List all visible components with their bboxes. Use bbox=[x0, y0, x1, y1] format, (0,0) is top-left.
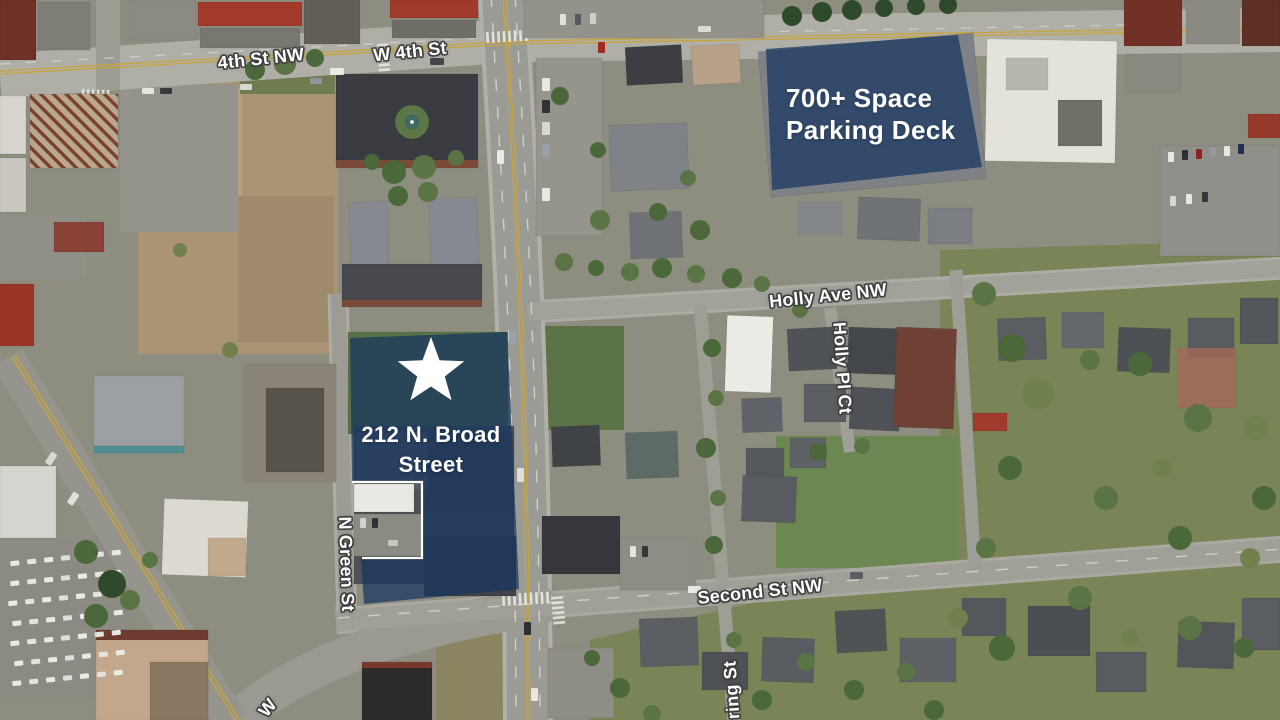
parking-deck-label-line2: Parking Deck bbox=[786, 114, 956, 146]
aerial-site-map: 4th St NW W 4th St Holly Ave NW Holly Pl… bbox=[0, 0, 1280, 720]
street-label-n-green-st: N Green St bbox=[334, 516, 358, 612]
map-canvas bbox=[0, 0, 1280, 720]
subject-property-label-line2: Street bbox=[350, 450, 512, 480]
parking-deck-label: 700+ Space Parking Deck bbox=[786, 82, 956, 146]
excluded-parcel-building bbox=[354, 484, 414, 512]
parking-deck-label-line1: 700+ Space bbox=[786, 82, 956, 114]
street-label-spring-st-partial: ring St bbox=[719, 660, 744, 720]
subject-property-label-line1: 212 N. Broad bbox=[350, 420, 512, 450]
subject-property-label: 212 N. Broad Street bbox=[350, 420, 512, 480]
ornate-building bbox=[30, 94, 118, 168]
